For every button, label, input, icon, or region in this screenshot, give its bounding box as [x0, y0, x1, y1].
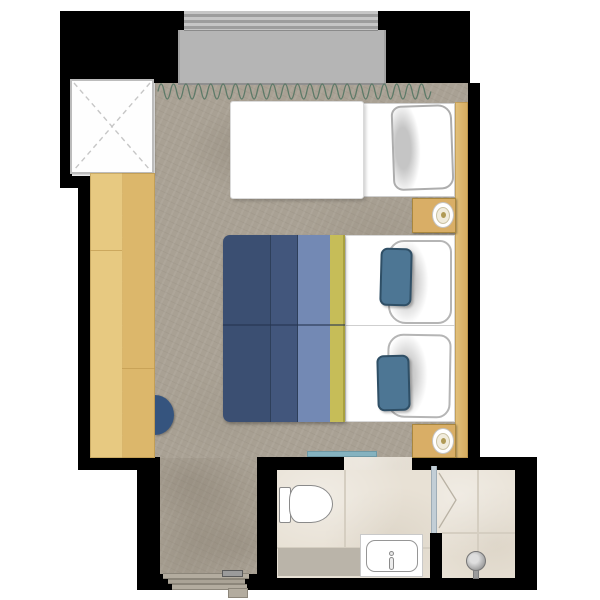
duvet-section-dark	[223, 235, 271, 422]
faucet-spout	[389, 557, 394, 570]
wall-corridor-left	[137, 468, 160, 590]
tile-grout-line	[344, 470, 346, 548]
blue-accent-pillow-upper	[379, 248, 413, 307]
double-bed-duvet	[223, 235, 345, 422]
bathroom-doorway-tile	[344, 457, 412, 470]
desk-plank-seam	[90, 250, 122, 251]
wall-top-right	[378, 11, 470, 83]
wall-top-left	[60, 11, 184, 83]
headboard-panel	[455, 102, 468, 458]
duvet-section-mid	[271, 235, 299, 422]
balcony-floor	[178, 30, 386, 85]
wall-shower-divider-stub	[430, 533, 442, 578]
wall-bathroom-right	[515, 470, 537, 590]
lamp-ring	[436, 207, 450, 224]
lamp-bulb	[441, 438, 446, 444]
tile-grout-line	[442, 532, 515, 534]
lamp-bulb	[441, 212, 446, 218]
daybed-pillow	[391, 104, 455, 191]
roller-shutter	[184, 11, 378, 31]
entry-corridor-floor	[158, 458, 257, 576]
wall-corridor-right	[257, 457, 277, 590]
lamp-lower	[432, 428, 454, 454]
duvet-section-slate	[298, 235, 330, 422]
desk-sideboard	[90, 173, 155, 458]
faucet-base	[389, 551, 394, 556]
entry-door-leaf	[228, 588, 248, 598]
entry-door-handle	[222, 570, 243, 577]
bath-mat	[278, 548, 360, 576]
lamp-ring	[436, 433, 450, 450]
shower-head	[466, 551, 486, 571]
shaft-cross-box	[70, 79, 154, 174]
wall-bathroom-bottom	[277, 578, 537, 590]
shower-glass-partition	[431, 466, 437, 533]
toilet-bowl	[289, 485, 333, 523]
wall-bathroom-top-left	[277, 457, 344, 470]
duvet-seam	[223, 324, 345, 326]
lamp-upper	[432, 202, 454, 228]
sliding-bathroom-door	[307, 451, 377, 457]
shower-stem	[473, 570, 479, 579]
blue-accent-pillow-lower	[376, 355, 410, 412]
wall-bedroom-right	[468, 83, 480, 460]
daybed-duvet	[230, 101, 364, 199]
mattress-seam	[345, 325, 455, 326]
duvet-yellow-runner	[330, 235, 345, 422]
desk-plank-seam	[122, 368, 155, 369]
wall-left-main	[78, 178, 90, 462]
floor-plan-canvas	[0, 0, 600, 600]
